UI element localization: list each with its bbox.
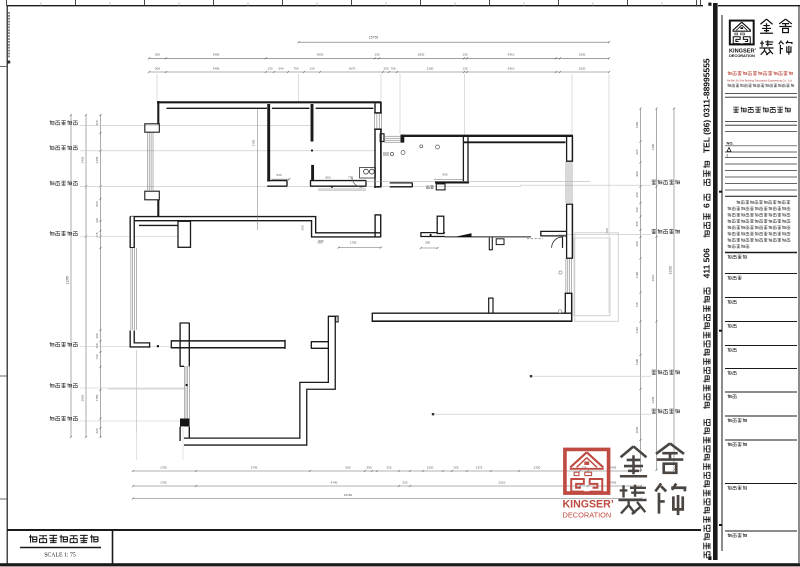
svg-text:1780: 1780 — [95, 394, 99, 401]
svg-text:16180: 16180 — [344, 493, 353, 497]
svg-text:130: 130 — [309, 66, 314, 70]
svg-text:2610: 2610 — [651, 274, 655, 281]
svg-text:1375: 1375 — [476, 465, 483, 469]
svg-text:4740: 4740 — [331, 480, 338, 484]
svg-text:3630: 3630 — [317, 53, 324, 57]
svg-text:NO.: NO. — [727, 141, 734, 146]
svg-text:1220: 1220 — [427, 465, 434, 469]
svg-text:TEL (86) 0311-88995555: TEL (86) 0311-88995555 — [702, 58, 712, 153]
svg-text:5410: 5410 — [508, 66, 515, 70]
svg-text:2100: 2100 — [427, 66, 434, 70]
svg-text:11320: 11320 — [669, 265, 673, 274]
svg-text:300: 300 — [301, 225, 305, 230]
svg-text:KINGSER’: KINGSER’ — [563, 499, 614, 511]
svg-text:745: 745 — [635, 302, 639, 307]
svg-text:590: 590 — [366, 465, 371, 469]
svg-text:1795: 1795 — [350, 241, 357, 245]
svg-text:265: 265 — [453, 465, 458, 469]
svg-text:130: 130 — [267, 66, 272, 70]
svg-text:2405: 2405 — [610, 480, 617, 484]
svg-text:360: 360 — [635, 192, 639, 197]
svg-text:411 506: 411 506 — [702, 248, 712, 279]
svg-text:140: 140 — [95, 354, 99, 359]
svg-text:2405: 2405 — [651, 396, 655, 403]
svg-text:2670: 2670 — [349, 66, 356, 70]
svg-text:3745: 3745 — [251, 465, 258, 469]
svg-text:1755: 1755 — [160, 480, 167, 484]
svg-text:3465: 3465 — [95, 156, 99, 163]
svg-text:700: 700 — [390, 66, 395, 70]
svg-text:605: 605 — [345, 465, 350, 469]
svg-text:625: 625 — [635, 149, 639, 154]
svg-text:800: 800 — [325, 176, 330, 180]
svg-text:505: 505 — [318, 239, 323, 243]
svg-text:770: 770 — [348, 176, 353, 180]
svg-text:He Bei Jin She Building Decora: He Bei Jin She Building Decoration Engin… — [727, 79, 792, 83]
svg-text:15755: 15755 — [369, 36, 379, 40]
svg-text:540: 540 — [276, 173, 281, 177]
svg-text:DECORATION: DECORATION — [729, 53, 755, 58]
svg-text:1110: 1110 — [635, 327, 639, 334]
svg-text:820: 820 — [95, 201, 99, 206]
svg-text:150: 150 — [95, 343, 99, 348]
svg-text:330: 330 — [95, 218, 99, 223]
svg-text:625: 625 — [95, 428, 99, 433]
svg-text:5410: 5410 — [508, 53, 515, 57]
svg-text:s: s — [727, 154, 729, 158]
svg-text:500: 500 — [155, 53, 160, 57]
svg-text:SCALE 1: 75: SCALE 1: 75 — [44, 553, 76, 559]
svg-text:2785: 2785 — [252, 139, 256, 146]
svg-text:2830: 2830 — [418, 53, 425, 57]
svg-text:1755: 1755 — [160, 465, 167, 469]
svg-text:235: 235 — [374, 53, 379, 57]
svg-text:2330: 2330 — [534, 465, 541, 469]
svg-text:1190: 1190 — [635, 271, 639, 278]
svg-text:11365: 11365 — [66, 275, 70, 284]
svg-text:325: 325 — [386, 465, 391, 469]
svg-text:555: 555 — [425, 241, 430, 245]
svg-text:1520: 1520 — [579, 53, 586, 57]
svg-text:500: 500 — [155, 66, 160, 70]
svg-text:1380: 1380 — [651, 143, 655, 150]
svg-text:900: 900 — [442, 173, 447, 177]
svg-text:790: 790 — [293, 66, 298, 70]
svg-text:325: 325 — [402, 480, 407, 484]
svg-text:5210: 5210 — [499, 480, 506, 484]
svg-text:1190: 1190 — [635, 358, 639, 365]
svg-text:3465: 3465 — [81, 156, 85, 163]
svg-text:665: 665 — [635, 221, 639, 226]
svg-text:2860: 2860 — [81, 394, 85, 401]
svg-text:3060: 3060 — [635, 426, 639, 433]
svg-text:820: 820 — [95, 120, 99, 125]
svg-text:205: 205 — [383, 66, 388, 70]
svg-text:3495: 3495 — [213, 66, 220, 70]
svg-text:540: 540 — [278, 66, 283, 70]
svg-text:135: 135 — [462, 53, 467, 57]
svg-text:300: 300 — [635, 241, 639, 246]
svg-text:430: 430 — [635, 207, 639, 212]
svg-text:390: 390 — [95, 333, 99, 338]
svg-text:3495: 3495 — [213, 53, 220, 57]
svg-text:2405: 2405 — [610, 465, 617, 469]
svg-text:980: 980 — [635, 171, 639, 176]
svg-text:1380: 1380 — [635, 121, 639, 128]
svg-text:DECORATION: DECORATION — [563, 511, 612, 520]
svg-text:6: 6 — [702, 203, 712, 208]
svg-text:135: 135 — [462, 66, 467, 70]
svg-text:1520: 1520 — [579, 66, 586, 70]
